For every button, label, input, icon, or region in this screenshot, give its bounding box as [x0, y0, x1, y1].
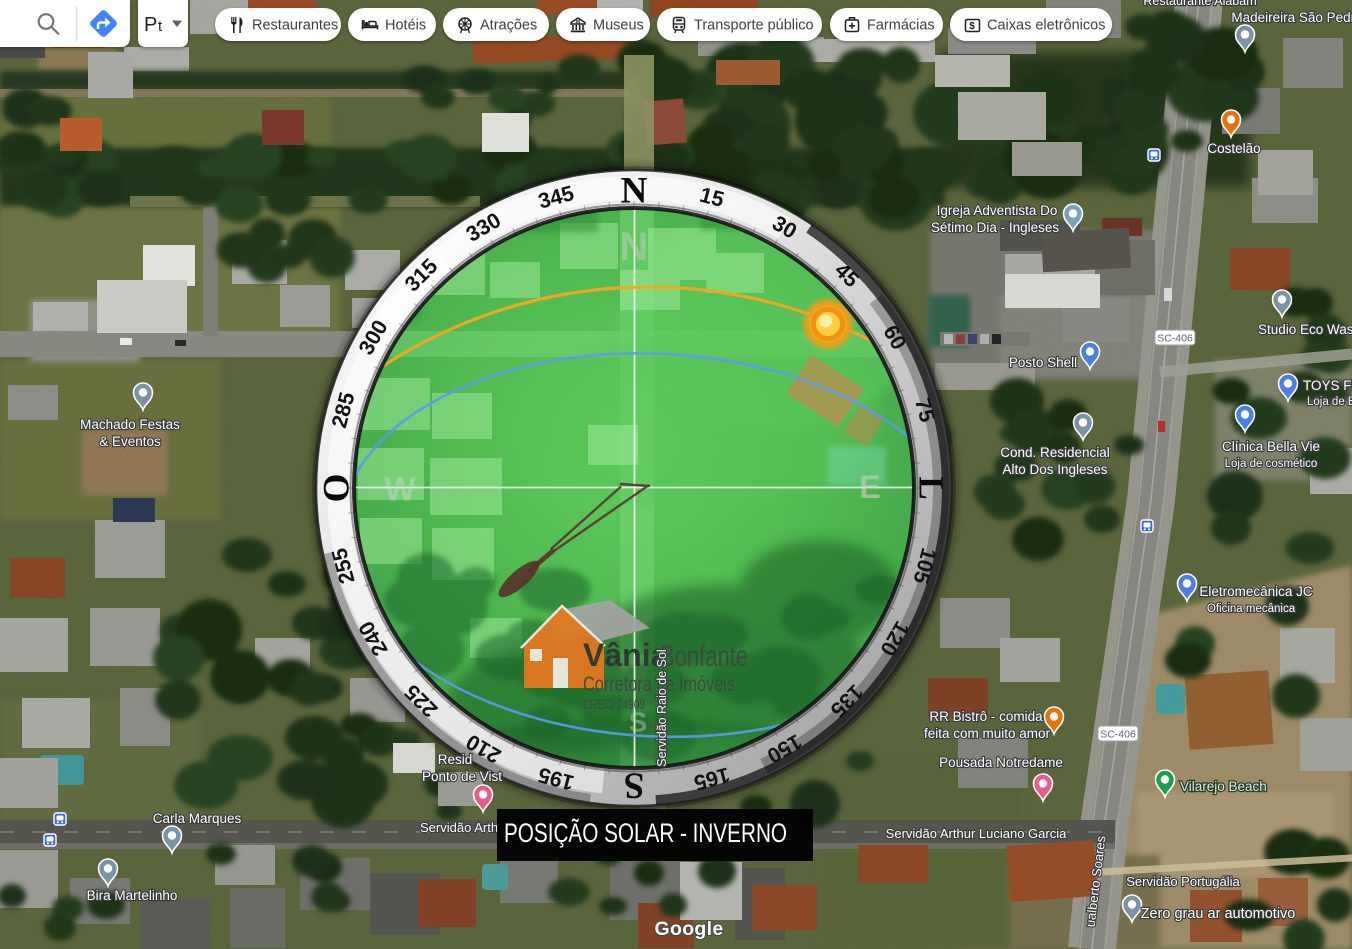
svg-text:N: N — [621, 171, 648, 212]
svg-text:& Eventos: & Eventos — [99, 434, 161, 449]
svg-text:Google: Google — [655, 918, 724, 940]
svg-text:P: P — [144, 14, 157, 36]
svg-text:W: W — [384, 471, 416, 508]
svg-text:M: M — [576, 19, 580, 25]
svg-text:Oficina mecânica: Oficina mecânica — [1207, 603, 1296, 615]
svg-text:L: L — [912, 476, 951, 499]
svg-text:CRECI 24909: CRECI 24909 — [583, 696, 645, 712]
svg-text:Servidão Raio de Sol: Servidão Raio de Sol — [655, 649, 669, 766]
svg-text:Madeireira São Pedro: Madeireira São Pedro — [1231, 10, 1352, 25]
svg-text:SC-406: SC-406 — [1100, 729, 1136, 741]
svg-text:Hotéis: Hotéis — [385, 18, 426, 34]
svg-text:O: O — [317, 474, 358, 503]
svg-text:SC-406: SC-406 — [1157, 333, 1193, 345]
svg-text:Studio Eco Was: Studio Eco Was — [1258, 322, 1352, 337]
svg-text:Pousada Notredame: Pousada Notredame — [939, 755, 1063, 770]
svg-text:Restaurantes: Restaurantes — [252, 18, 338, 34]
svg-text:feita com muito amor: feita com muito amor — [924, 726, 1051, 741]
svg-text:Eletromecânica JC: Eletromecânica JC — [1199, 584, 1313, 599]
svg-text:Bonfante: Bonfante — [660, 640, 748, 673]
svg-text:E: E — [859, 469, 880, 505]
svg-text:Ponto de Vist: Ponto de Vist — [422, 769, 502, 784]
svg-text:Restaurante Alabam: Restaurante Alabam — [1143, 0, 1256, 8]
svg-text:N: N — [620, 225, 649, 269]
svg-text:Servidão Arthur Luciano Garcia: Servidão Arthur Luciano Garcia — [886, 826, 1067, 841]
svg-text:Museus: Museus — [593, 18, 644, 34]
svg-text:Resid: Resid — [438, 752, 473, 767]
svg-text:Loja de Br: Loja de Br — [1307, 396, 1352, 408]
svg-text:Zero grau ar automotivo: Zero grau ar automotivo — [1141, 906, 1296, 922]
svg-text:TOYS FL: TOYS FL — [1303, 378, 1352, 393]
svg-text:Vilarejo Beach: Vilarejo Beach — [1180, 779, 1267, 794]
svg-text:Loja de cosmético: Loja de cosmético — [1225, 458, 1318, 470]
svg-text:Igreja Adventista Do: Igreja Adventista Do — [937, 203, 1058, 218]
svg-text:Costelão: Costelão — [1207, 141, 1260, 156]
svg-text:Caixas eletrônicos: Caixas eletrônicos — [987, 18, 1105, 34]
svg-text:Servidão Portugália: Servidão Portugália — [1126, 874, 1240, 889]
svg-text:$: $ — [969, 21, 975, 32]
svg-text:Sétimo Dia - Ingleses: Sétimo Dia - Ingleses — [931, 220, 1060, 235]
svg-text:Farmácias: Farmácias — [867, 18, 935, 34]
svg-text:RR Bistrô - comida: RR Bistrô - comida — [929, 709, 1043, 724]
svg-text:Alto Dos Ingleses: Alto Dos Ingleses — [1002, 462, 1107, 477]
svg-text:Posto Shell: Posto Shell — [1009, 355, 1077, 370]
svg-text:Carla Marques: Carla Marques — [153, 811, 242, 826]
svg-text:Bira Martelinho: Bira Martelinho — [87, 888, 178, 903]
svg-text:S: S — [624, 765, 645, 806]
svg-text:Machado Festas: Machado Festas — [80, 417, 180, 432]
svg-text:Atrações: Atrações — [480, 18, 537, 34]
svg-text:Cond. Residencial: Cond. Residencial — [1000, 445, 1110, 460]
svg-text:Transporte público: Transporte público — [694, 18, 814, 34]
svg-text:Clínica Bella Vie: Clínica Bella Vie — [1222, 439, 1320, 454]
svg-text:Servidão Arth: Servidão Arth — [420, 820, 498, 835]
svg-text:POSIÇÃO SOLAR - INVERNO: POSIÇÃO SOLAR - INVERNO — [504, 817, 787, 848]
